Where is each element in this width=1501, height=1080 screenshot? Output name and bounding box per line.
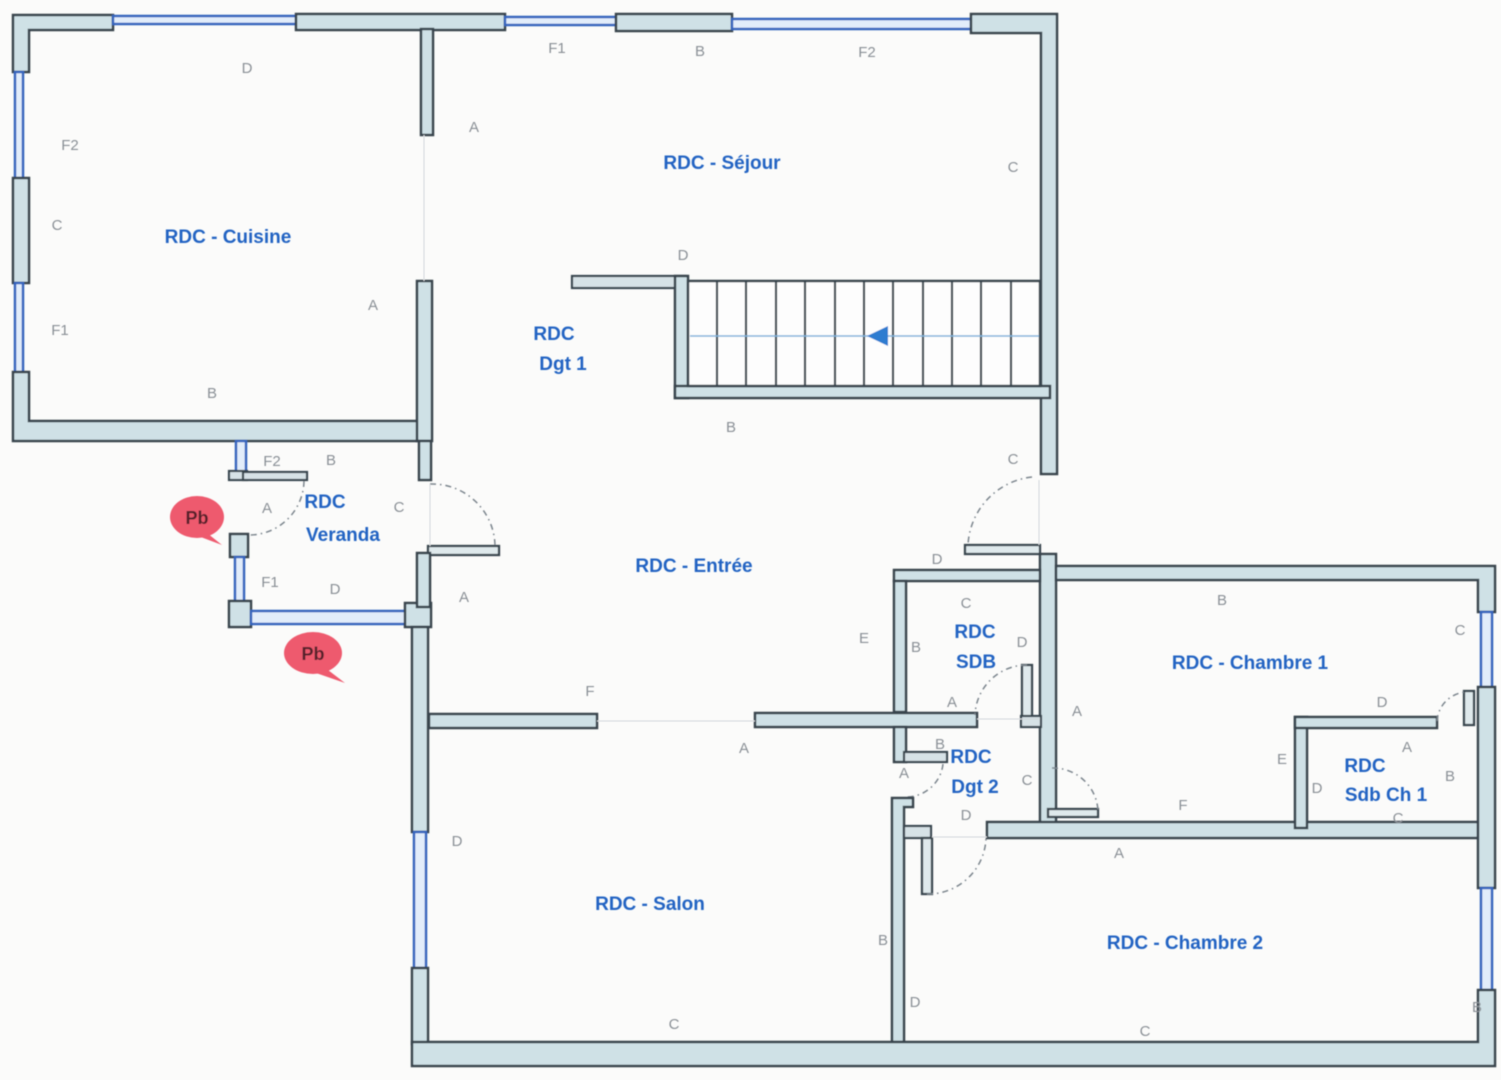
svg-text:D: D — [961, 807, 972, 824]
svg-text:F1: F1 — [51, 322, 69, 339]
svg-text:C: C — [394, 499, 405, 516]
svg-text:B: B — [1472, 999, 1482, 1016]
svg-text:A: A — [469, 119, 479, 136]
svg-text:A: A — [1402, 739, 1412, 756]
svg-text:F: F — [585, 683, 594, 700]
svg-text:Dgt 1: Dgt 1 — [539, 354, 587, 375]
svg-text:A: A — [947, 694, 957, 711]
svg-text:RDC: RDC — [954, 622, 995, 643]
svg-text:Pb: Pb — [301, 644, 324, 664]
svg-text:D: D — [242, 60, 253, 77]
svg-text:D: D — [910, 994, 921, 1011]
svg-text:C: C — [1008, 451, 1019, 468]
svg-text:B: B — [1217, 592, 1227, 609]
svg-text:RDC - Chambre 2: RDC - Chambre 2 — [1107, 933, 1263, 954]
svg-text:D: D — [330, 581, 341, 598]
svg-text:RDC: RDC — [533, 324, 574, 345]
svg-text:C: C — [52, 217, 63, 234]
svg-text:E: E — [1277, 751, 1287, 768]
svg-text:RDC: RDC — [1344, 756, 1385, 777]
svg-text:C: C — [1455, 622, 1466, 639]
svg-text:F2: F2 — [61, 137, 79, 154]
svg-text:A: A — [262, 500, 272, 517]
svg-text:F1: F1 — [548, 40, 566, 57]
svg-text:A: A — [1072, 703, 1082, 720]
svg-text:A: A — [739, 740, 749, 757]
svg-text:D: D — [932, 551, 943, 568]
svg-text:A: A — [899, 765, 909, 782]
svg-text:A: A — [1114, 845, 1124, 862]
svg-text:Sdb Ch 1: Sdb Ch 1 — [1345, 785, 1428, 806]
svg-text:D: D — [1312, 780, 1323, 797]
svg-text:F2: F2 — [858, 44, 876, 61]
svg-text:SDB: SDB — [956, 652, 996, 673]
svg-text:F: F — [1178, 797, 1187, 814]
svg-text:A: A — [459, 589, 469, 606]
svg-text:C: C — [961, 595, 972, 612]
svg-text:D: D — [1377, 694, 1388, 711]
svg-text:B: B — [695, 43, 705, 60]
svg-text:RDC - Salon: RDC - Salon — [595, 894, 705, 915]
svg-text:D: D — [1017, 634, 1028, 651]
svg-text:B: B — [726, 419, 736, 436]
svg-text:B: B — [326, 452, 336, 469]
svg-text:C: C — [1140, 1023, 1151, 1040]
svg-text:RDC - Cuisine: RDC - Cuisine — [165, 227, 292, 248]
svg-text:Pb: Pb — [185, 508, 208, 528]
svg-text:B: B — [935, 736, 945, 753]
svg-text:B: B — [1445, 768, 1455, 785]
svg-text:D: D — [452, 833, 463, 850]
svg-text:B: B — [911, 639, 921, 656]
svg-text:C: C — [1393, 810, 1404, 827]
svg-text:Dgt 2: Dgt 2 — [951, 777, 999, 798]
svg-text:C: C — [669, 1016, 680, 1033]
svg-text:RDC: RDC — [304, 492, 345, 513]
svg-text:RDC - Séjour: RDC - Séjour — [663, 153, 781, 174]
svg-text:RDC - Entrée: RDC - Entrée — [635, 556, 752, 577]
svg-text:B: B — [878, 932, 888, 949]
svg-text:F2: F2 — [263, 453, 281, 470]
svg-text:C: C — [1008, 159, 1019, 176]
svg-text:A: A — [368, 297, 378, 314]
svg-text:B: B — [207, 385, 217, 402]
svg-text:Veranda: Veranda — [306, 525, 380, 546]
svg-text:RDC: RDC — [950, 747, 991, 768]
svg-text:D: D — [678, 247, 689, 264]
svg-text:E: E — [859, 630, 869, 647]
svg-text:RDC - Chambre 1: RDC - Chambre 1 — [1172, 653, 1329, 674]
svg-text:F1: F1 — [261, 574, 279, 591]
svg-text:C: C — [1022, 772, 1033, 789]
